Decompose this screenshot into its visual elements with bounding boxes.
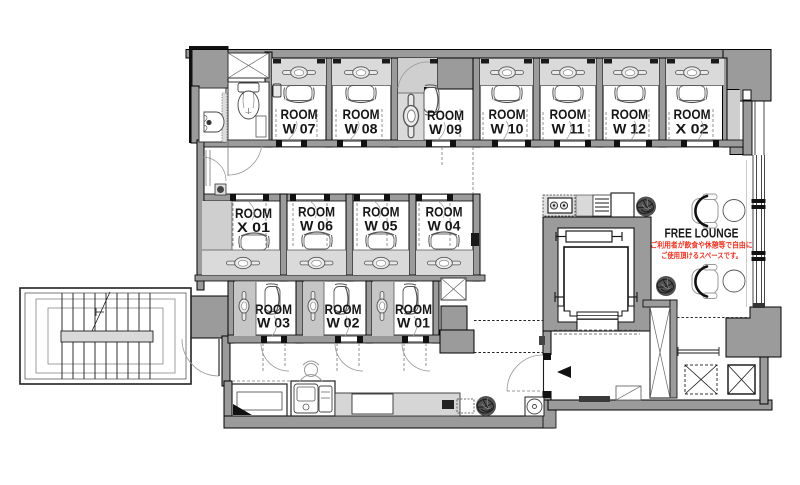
- svg-text:FREE LOUNGE: FREE LOUNGE: [665, 226, 739, 241]
- svg-text:W 09: W 09: [429, 121, 462, 137]
- svg-text:W 02: W 02: [327, 315, 360, 331]
- svg-text:W 08: W 08: [345, 121, 378, 137]
- svg-text:X 01: X 01: [237, 219, 270, 235]
- svg-text:W 05: W 05: [365, 218, 398, 234]
- svg-text:W 12: W 12: [613, 121, 646, 137]
- svg-text:ご使用頂けるスペースです。: ご使用頂けるスペースです。: [661, 251, 742, 260]
- svg-text:W 11: W 11: [552, 121, 585, 137]
- svg-text:W 01: W 01: [397, 315, 430, 331]
- svg-text:W 06: W 06: [300, 218, 333, 234]
- svg-text:X 02: X 02: [676, 121, 709, 137]
- svg-text:W 04: W 04: [428, 218, 461, 234]
- svg-text:W 03: W 03: [257, 315, 290, 331]
- svg-text:W 07: W 07: [283, 121, 316, 137]
- svg-text:ご利用者が飲食や休憩等で自由に: ご利用者が飲食や休憩等で自由に: [651, 241, 753, 250]
